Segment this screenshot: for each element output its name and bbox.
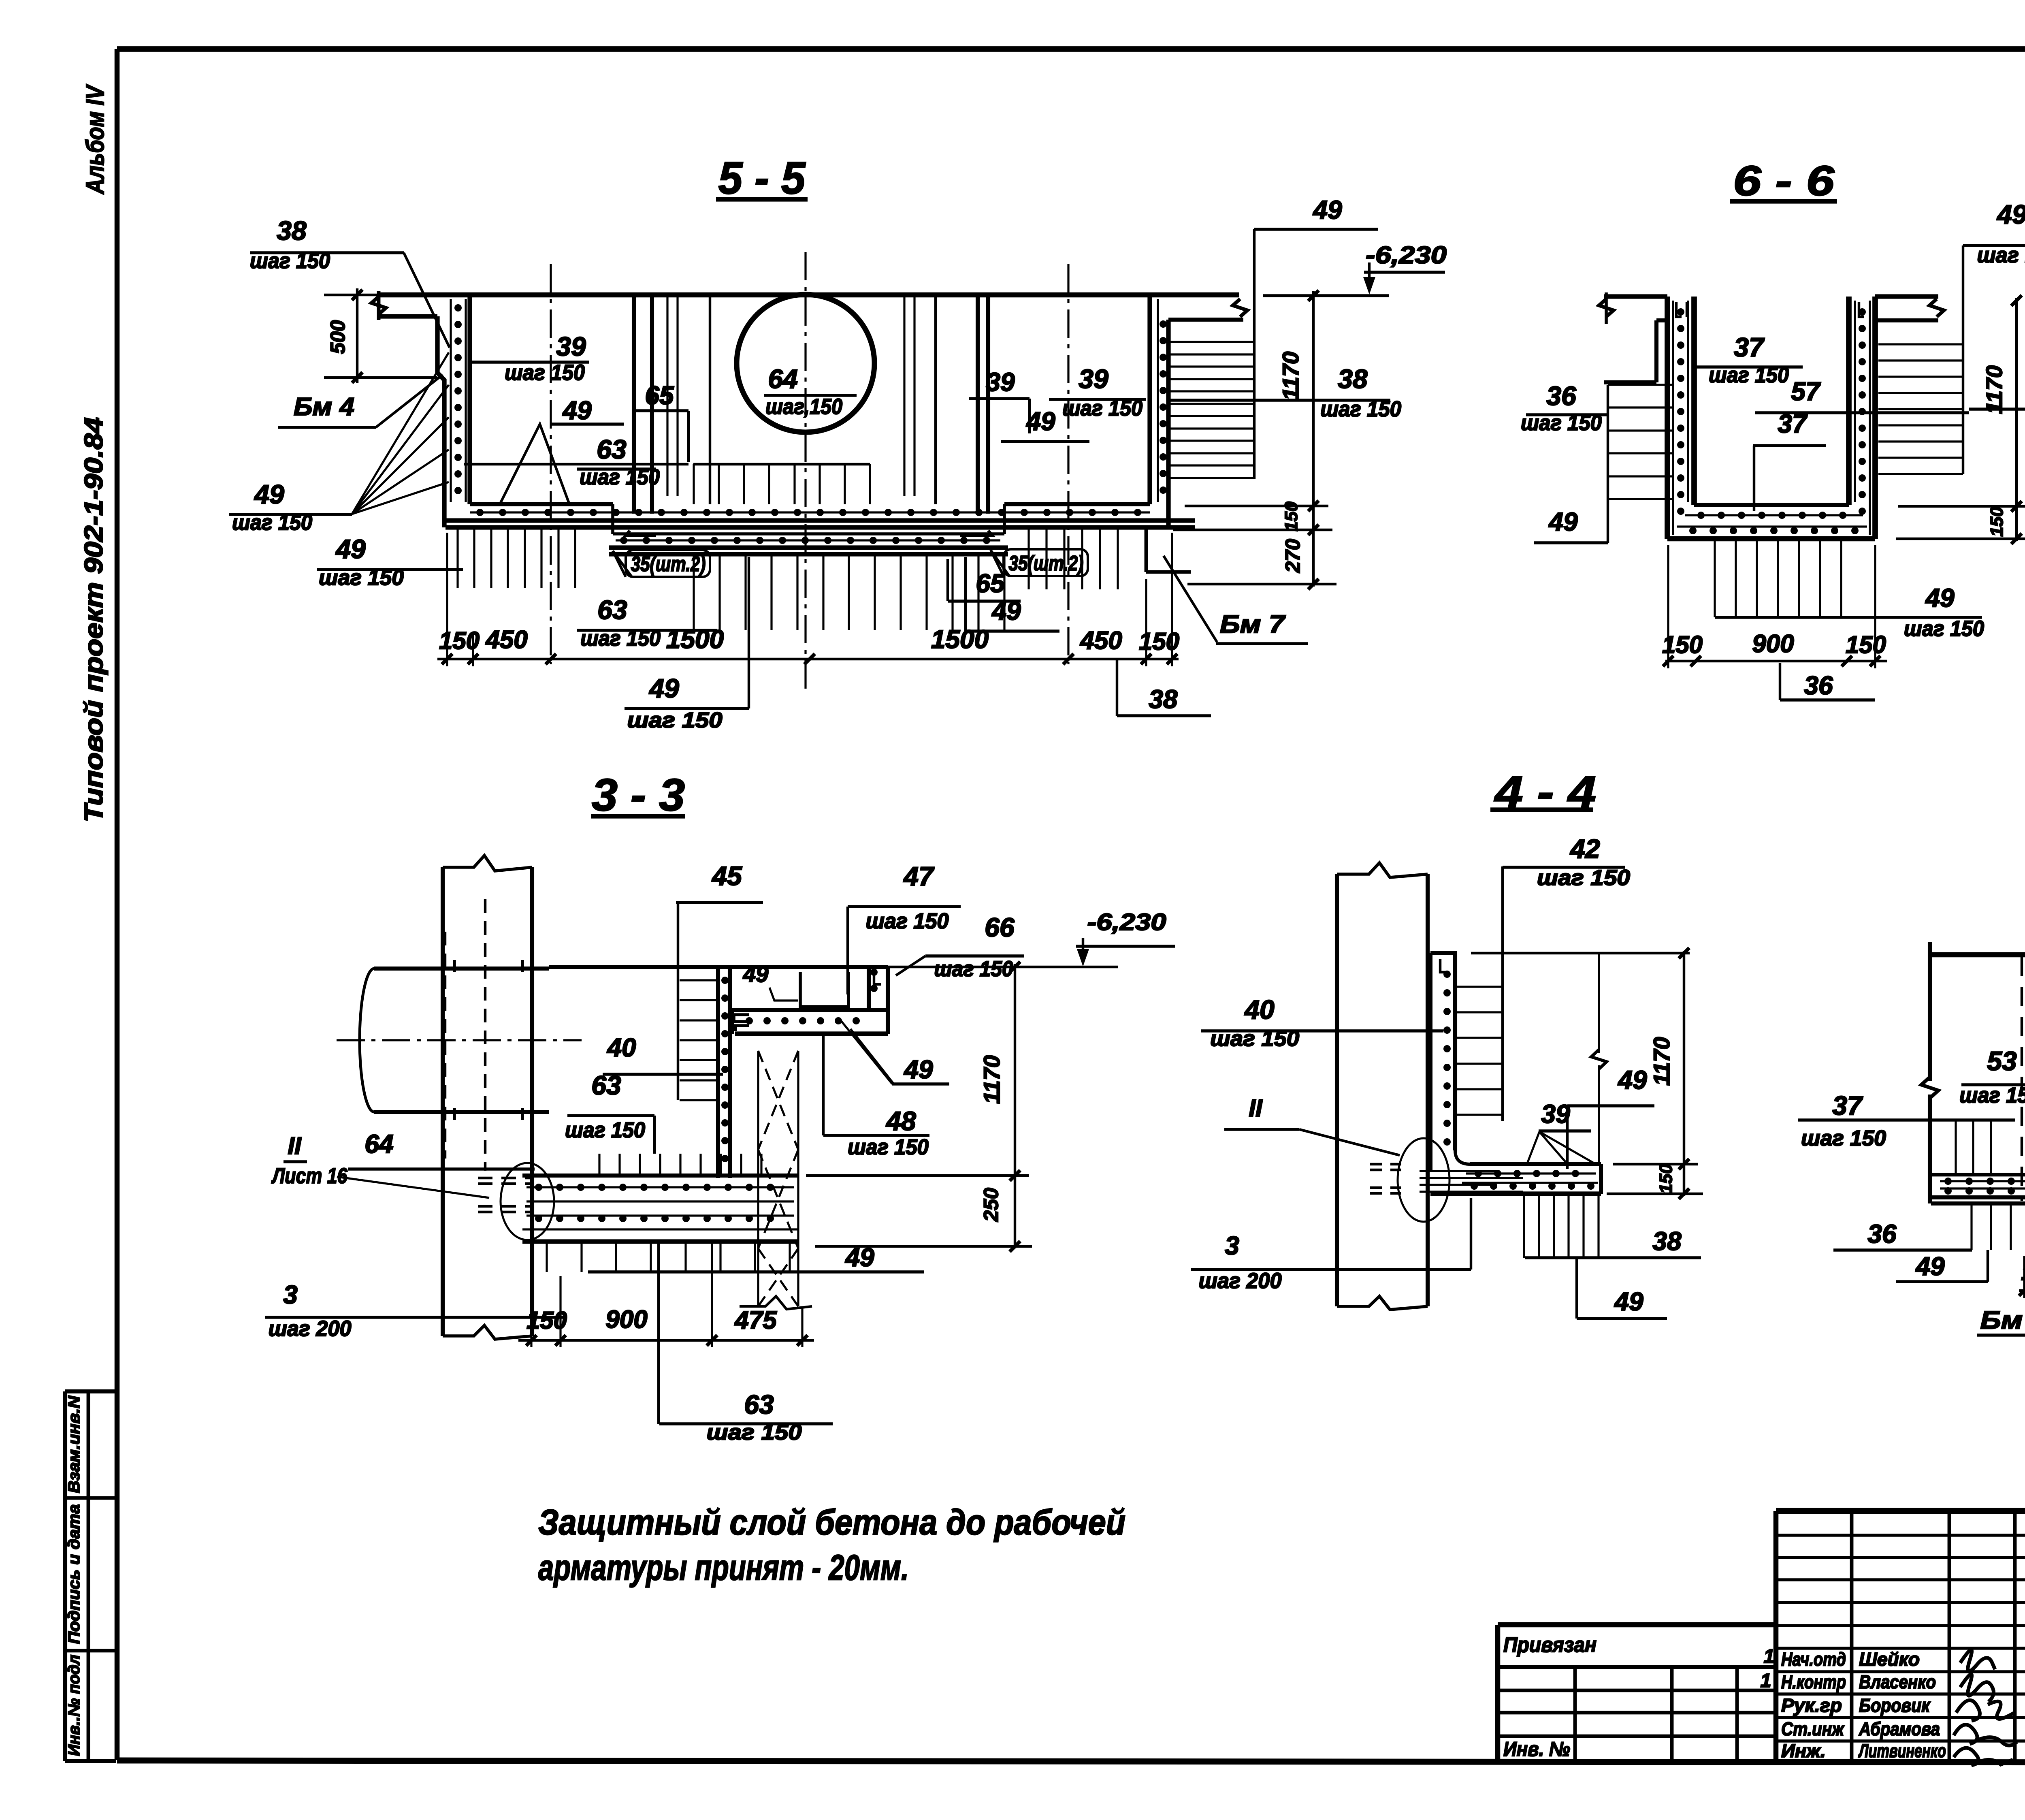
svg-text:1170: 1170 [1649, 1037, 1674, 1086]
svg-text:65: 65 [976, 569, 1005, 598]
svg-text:63: 63 [591, 1070, 621, 1100]
svg-text:150: 150 [439, 627, 480, 654]
svg-text:39: 39 [986, 367, 1015, 397]
svg-text:Боровик: Боровик [1859, 1695, 1931, 1716]
svg-text:49: 49 [648, 673, 679, 703]
svg-text:49: 49 [991, 596, 1021, 625]
svg-text:37: 37 [1734, 332, 1765, 362]
svg-text:Защитный слой бетона до ра: Защитный слой бетона до рабочей [538, 1502, 1125, 1542]
svg-text:3 - 3: 3 - 3 [592, 770, 685, 820]
svg-text:49: 49 [1915, 1252, 1945, 1281]
svg-text:Типовой проект 902-1-90.84: Типовой проект 902-1-90.84 [79, 417, 108, 822]
svg-text:Ст.инж: Ст.инж [1781, 1718, 1845, 1739]
svg-text:39: 39 [1079, 364, 1108, 394]
svg-text:Бм 7: Бм 7 [1220, 610, 1286, 638]
svg-text:шаг 150: шаг 150 [232, 510, 312, 535]
svg-text:шаг 150: шаг 150 [319, 565, 404, 590]
svg-text:Н.контр: Н.контр [1781, 1671, 1846, 1692]
svg-text:шаг 150: шаг 150 [1537, 866, 1630, 890]
svg-text:150: 150 [1987, 507, 2007, 537]
svg-text:арматуры принят - 20мм.: арматуры принят - 20мм. [538, 1547, 909, 1587]
svg-text:45: 45 [711, 861, 742, 891]
svg-text:49: 49 [335, 534, 366, 564]
svg-text:шаг 150: шаг 150 [1320, 397, 1401, 421]
svg-text:шаг 150: шаг 150 [565, 1118, 645, 1142]
svg-text:40: 40 [606, 1033, 636, 1062]
svg-text:37: 37 [1832, 1090, 1863, 1120]
svg-text:шаг 150: шаг 150 [1062, 396, 1143, 420]
svg-text:II: II [1249, 1095, 1263, 1122]
svg-text:150: 150 [1662, 631, 1703, 658]
svg-text:шаг 150: шаг 150 [866, 909, 949, 933]
svg-text:Инв..№ подл: Инв..№ подл [65, 1655, 83, 1756]
svg-text:150: 150 [526, 1307, 567, 1334]
svg-text:шаг 150: шаг 150 [1977, 243, 2025, 267]
svg-text:63: 63 [744, 1389, 774, 1419]
svg-text:Нач.отд: Нач.отд [1781, 1649, 1846, 1670]
svg-text:1500: 1500 [931, 625, 989, 654]
svg-text:39: 39 [1541, 1099, 1570, 1129]
svg-text:шаг 200: шаг 200 [269, 1316, 352, 1341]
svg-text:150: 150 [2021, 1258, 2025, 1285]
svg-text:Лист 16: Лист 16 [271, 1164, 347, 1188]
svg-text:150: 150 [1139, 628, 1179, 655]
svg-text:шаг 200: шаг 200 [1199, 1269, 1282, 1293]
svg-text:3: 3 [1225, 1231, 1239, 1260]
svg-text:Литвиненко: Литвиненко [1858, 1740, 1946, 1761]
svg-text:5 - 5: 5 - 5 [718, 153, 806, 203]
svg-text:450: 450 [485, 626, 527, 654]
svg-text:49: 49 [1617, 1065, 1647, 1095]
svg-text:Инж.: Инж. [1781, 1740, 1826, 1761]
svg-text:49: 49 [1548, 507, 1578, 536]
svg-text:37: 37 [1778, 409, 1808, 438]
svg-text:Бм 6: Бм 6 [1980, 1306, 2025, 1334]
svg-text:36: 36 [1546, 381, 1577, 411]
svg-text:II: II [288, 1132, 302, 1159]
svg-text:шаг 150: шаг 150 [934, 957, 1013, 981]
svg-text:шаг 150: шаг 150 [580, 626, 661, 651]
svg-text:57: 57 [1791, 377, 1821, 406]
svg-text:Альбом IV: Альбом IV [81, 84, 109, 195]
svg-text:1170: 1170 [979, 1055, 1004, 1104]
svg-text:900: 900 [605, 1306, 647, 1334]
svg-text:36: 36 [1867, 1219, 1897, 1248]
svg-text:6 - 6: 6 - 6 [1733, 158, 1835, 205]
svg-text:шаг 150: шаг 150 [627, 708, 723, 732]
svg-text:63: 63 [597, 434, 626, 464]
svg-text:1170: 1170 [1278, 352, 1303, 400]
svg-text:40: 40 [1244, 994, 1275, 1024]
svg-text:шаг 150: шаг 150 [1904, 617, 1984, 641]
svg-text:38: 38 [1149, 685, 1178, 714]
svg-text:шаг 150: шаг 150 [1210, 1026, 1299, 1051]
svg-text:-6,230: -6,230 [1366, 241, 1447, 269]
svg-text:49: 49 [254, 479, 284, 509]
svg-text:Инв. №: Инв. № [1503, 1738, 1570, 1760]
svg-text:шаг 150: шаг 150 [1801, 1126, 1886, 1150]
svg-text:900: 900 [1752, 630, 1794, 658]
svg-text:35(шт.2): 35(шт.2) [631, 553, 706, 576]
svg-text:шаг 150: шаг 150 [1709, 363, 1789, 387]
svg-text:49: 49 [1312, 195, 1342, 224]
svg-text:шаг 150: шаг 150 [1959, 1083, 2025, 1107]
svg-text:-6,230: -6,230 [1087, 909, 1166, 935]
svg-text:450: 450 [1079, 627, 1122, 655]
svg-text:шаг 150: шаг 150 [580, 465, 660, 489]
svg-text:64: 64 [768, 364, 797, 394]
svg-text:49: 49 [844, 1243, 874, 1272]
svg-text:3: 3 [283, 1280, 298, 1309]
svg-text:150: 150 [1656, 1164, 1676, 1194]
svg-text:42: 42 [1569, 834, 1600, 864]
svg-text:64: 64 [364, 1129, 393, 1159]
svg-text:1: 1 [1764, 1646, 1775, 1667]
svg-text:шаг 150: шаг 150 [250, 249, 330, 273]
svg-text:63: 63 [597, 595, 627, 625]
svg-text:36: 36 [1804, 671, 1833, 700]
svg-text:49: 49 [903, 1055, 933, 1084]
svg-text:38: 38 [277, 215, 307, 245]
svg-text:49: 49 [1025, 407, 1055, 436]
svg-text:48: 48 [885, 1106, 916, 1136]
svg-text:шаг 150: шаг 150 [1521, 411, 1602, 435]
svg-text:шаг 150: шаг 150 [505, 361, 585, 385]
svg-text:Рук.гр: Рук.гр [1781, 1695, 1842, 1716]
svg-text:49: 49 [1925, 583, 1955, 612]
svg-text:Взам.инв.N: Взам.инв.N [65, 1395, 83, 1493]
svg-text:49: 49 [1614, 1287, 1643, 1316]
svg-text:475: 475 [734, 1306, 777, 1334]
svg-text:шаг,150: шаг,150 [765, 395, 842, 419]
svg-text:38: 38 [1338, 364, 1368, 394]
svg-text:Подпись и дата: Подпись и дата [65, 1504, 83, 1644]
svg-text:47: 47 [903, 861, 935, 891]
svg-text:1170: 1170 [1981, 365, 2007, 414]
svg-text:1500: 1500 [666, 625, 724, 654]
svg-text:270: 270 [1281, 539, 1304, 573]
svg-text:1: 1 [1761, 1670, 1771, 1692]
svg-text:49: 49 [1996, 199, 2025, 229]
svg-text:39: 39 [556, 331, 586, 361]
svg-text:38: 38 [1652, 1227, 1682, 1256]
svg-text:49: 49 [562, 396, 592, 425]
svg-text:Власенко: Власенко [1859, 1671, 1936, 1692]
svg-text:Привязан: Привязан [1503, 1633, 1597, 1657]
svg-text:66: 66 [985, 912, 1015, 942]
svg-text:35(шт.2): 35(шт.2) [1009, 552, 1084, 575]
svg-text:шаг 150: шаг 150 [707, 1420, 802, 1444]
svg-text:53: 53 [1987, 1046, 2016, 1076]
svg-text:Бм 4: Бм 4 [294, 393, 354, 421]
svg-text:Шейко: Шейко [1859, 1649, 1920, 1670]
svg-text:500: 500 [326, 320, 349, 354]
svg-text:150: 150 [1846, 631, 1886, 658]
svg-text:шаг 150: шаг 150 [848, 1135, 929, 1159]
svg-text:Абрамова: Абрамова [1859, 1718, 1940, 1739]
svg-text:49: 49 [743, 961, 768, 987]
svg-text:65: 65 [645, 381, 674, 410]
svg-text:250: 250 [980, 1188, 1002, 1222]
